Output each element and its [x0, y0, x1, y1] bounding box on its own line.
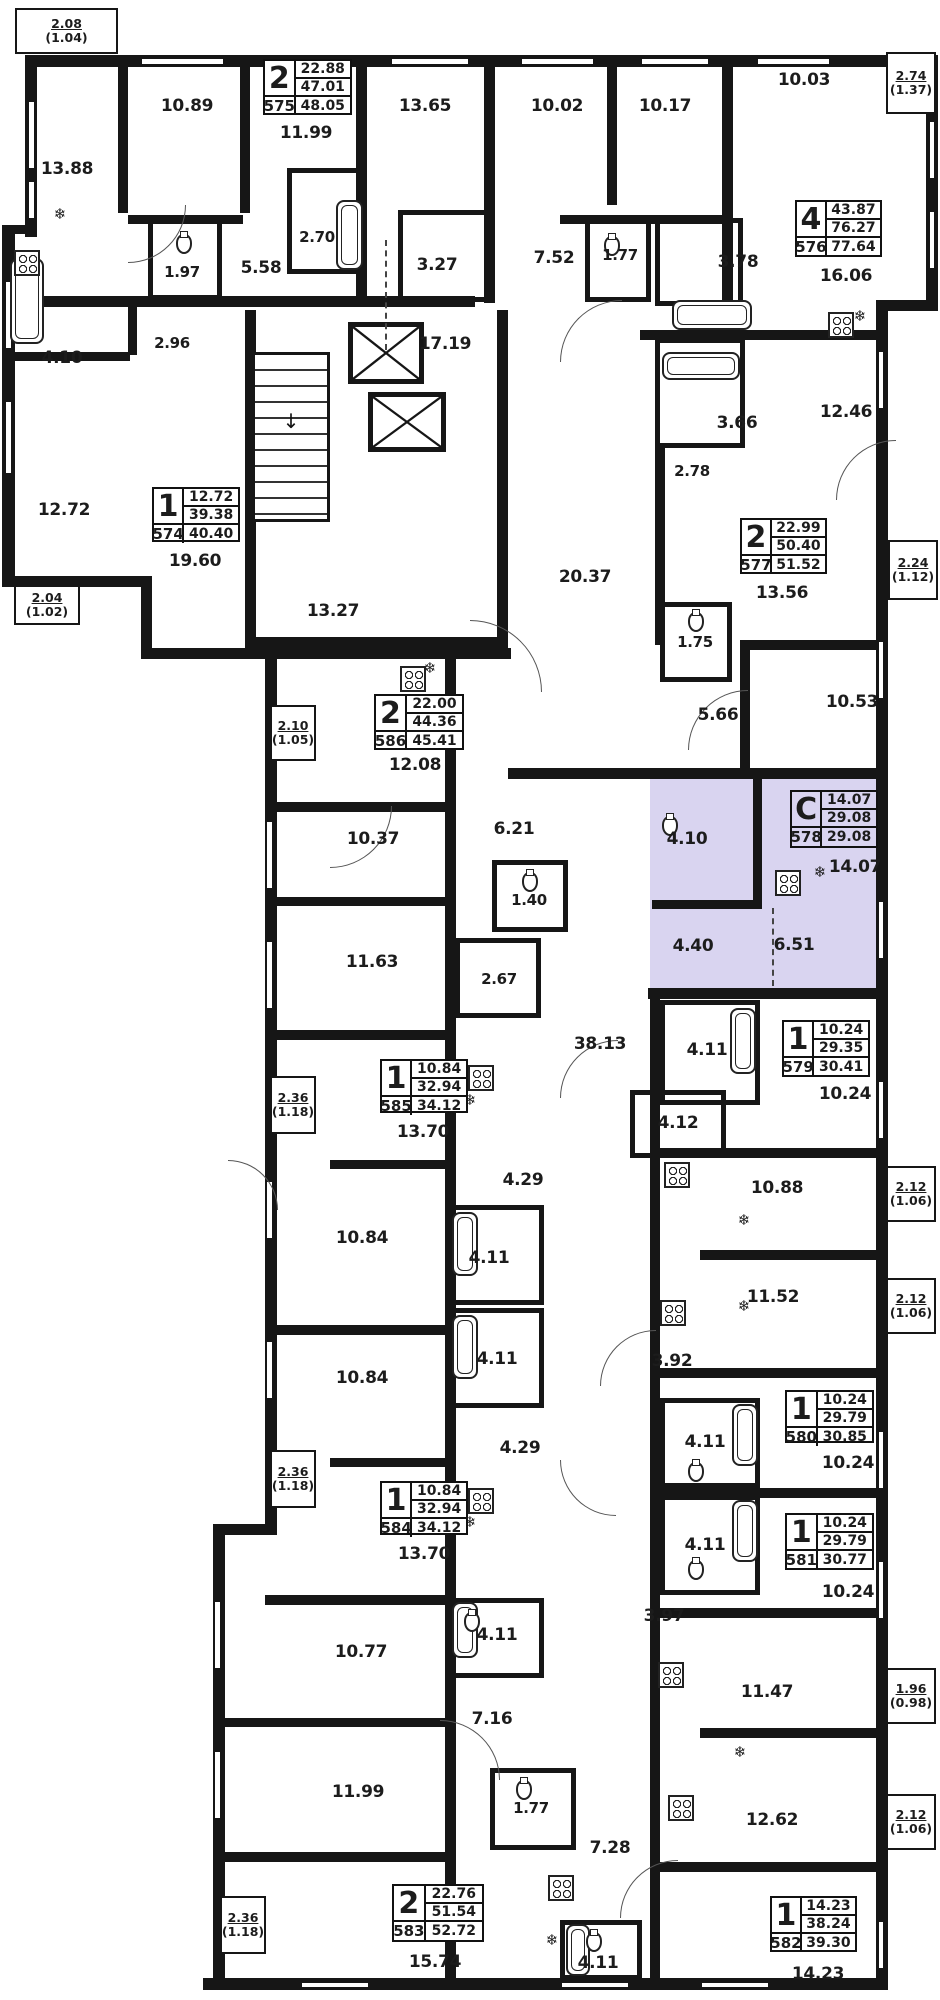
window — [213, 1600, 222, 1670]
apartment-card-580[interactable]: 110.2429.7958030.85 — [785, 1390, 874, 1443]
room-area-label: 1.75 — [677, 633, 713, 651]
dashed-line — [385, 240, 387, 350]
room-area-label: 4.10 — [667, 829, 708, 849]
apartment-area: 29.79 — [818, 1533, 872, 1549]
balcony-area-reduced: (1.04) — [45, 31, 87, 45]
window — [265, 1340, 274, 1400]
room-area-label: 10.02 — [531, 96, 583, 116]
toilet-icon — [586, 1932, 602, 1952]
apartment-card-585[interactable]: 110.8432.9458534.12 — [380, 1059, 468, 1113]
apartment-card-581[interactable]: 110.2429.7958130.77 — [785, 1513, 874, 1570]
apartment-living-area: 43.87 — [827, 202, 880, 220]
balcony-label: 2.36(1.18) — [220, 1896, 266, 1954]
room-area-label: 10.24 — [822, 1453, 874, 1473]
stove-icon — [775, 870, 801, 896]
window — [140, 57, 225, 66]
apartment-area: 50.40 — [772, 538, 825, 554]
room-area-label: 13.70 — [398, 1544, 450, 1564]
apartment-living-area: 22.88 — [296, 61, 350, 79]
balcony-area-reduced: (1.02) — [26, 605, 68, 619]
room-area-label: 14.23 — [792, 1964, 844, 1984]
balcony-area-reduced: (0.98) — [890, 1696, 932, 1710]
wall — [648, 988, 886, 999]
apartment-number: 586 — [376, 730, 407, 750]
wall — [213, 1718, 451, 1727]
room-area-label: 4.11 — [477, 1349, 518, 1369]
room-area-label: 4.11 — [685, 1535, 726, 1555]
apartment-total-area: 30.77 — [818, 1549, 872, 1569]
apartment-room-count: 1 — [787, 1392, 818, 1426]
window — [213, 1750, 222, 1820]
room-area-label: 4.40 — [673, 936, 714, 956]
apartment-number: 577 — [742, 554, 772, 574]
window — [756, 57, 831, 66]
balcony-area-reduced: (1.37) — [890, 83, 932, 97]
apartment-area: 51.54 — [426, 1904, 482, 1920]
window — [700, 1981, 770, 1989]
room-area-label: 2.78 — [674, 462, 710, 480]
wall — [213, 1524, 277, 1535]
balcony-label: 2.36(1.18) — [270, 1450, 316, 1508]
room-area-label: 10.17 — [639, 96, 691, 116]
balcony-label: 2.08(1.04) — [15, 8, 118, 54]
apartment-number: 585 — [382, 1095, 412, 1115]
apartment-total-area: 52.72 — [426, 1920, 482, 1940]
toilet-icon — [688, 1560, 704, 1580]
window — [877, 1560, 885, 1620]
apartment-room-count: 2 — [742, 520, 772, 554]
apartment-card-575[interactable]: 222.8847.0157548.05 — [263, 59, 352, 115]
fridge-icon: ❄ — [814, 863, 827, 881]
room-area-label: 12.62 — [746, 1810, 798, 1830]
apartment-total-area: 45.41 — [407, 730, 462, 750]
wall — [245, 637, 505, 648]
apartment-number: 583 — [394, 1920, 426, 1940]
wall — [265, 1595, 451, 1605]
apartment-living-area: 22.76 — [426, 1886, 482, 1904]
room-area-label: 11.52 — [747, 1287, 799, 1307]
room-area-label: 5.58 — [241, 258, 282, 278]
stove-icon — [660, 1300, 686, 1326]
room-area-label: 4.29 — [500, 1438, 541, 1458]
bathtub-icon — [452, 1315, 478, 1379]
wall — [330, 1160, 452, 1169]
apartment-room-count: 1 — [382, 1483, 412, 1517]
apartment-number: 578 — [792, 826, 822, 846]
window — [390, 57, 470, 66]
room-area-label: 20.37 — [559, 567, 611, 587]
window — [265, 820, 274, 890]
balcony-label: 2.12(1.06) — [886, 1166, 936, 1222]
stove-icon — [14, 250, 40, 276]
balcony-area-reduced: (1.18) — [272, 1105, 314, 1119]
elevator-icon — [368, 392, 446, 452]
apartment-living-area: 10.84 — [412, 1061, 466, 1079]
room-area-label: 10.84 — [336, 1228, 388, 1248]
apartment-card-579[interactable]: 110.2429.3557930.41 — [782, 1020, 870, 1077]
wall — [265, 1325, 451, 1335]
apartment-living-area: 10.84 — [412, 1483, 466, 1501]
balcony-area-reduced: (1.12) — [892, 570, 934, 584]
room-area-label: 38.13 — [574, 1034, 626, 1054]
wall — [753, 773, 762, 909]
apartment-number: 575 — [265, 95, 296, 115]
balcony-area: 2.08 — [51, 17, 82, 31]
room-area-label: 10.24 — [819, 1084, 871, 1104]
bathtub-icon — [672, 300, 752, 330]
apartment-room-count: 2 — [265, 61, 296, 95]
window — [27, 180, 36, 220]
door-arc — [836, 440, 896, 500]
stove-icon — [668, 1795, 694, 1821]
apartment-room-count: 2 — [394, 1886, 426, 1920]
window — [877, 350, 885, 410]
room-area-label: 10.89 — [161, 96, 213, 116]
apartment-living-area: 10.24 — [814, 1022, 868, 1040]
apartment-area: 32.94 — [412, 1501, 466, 1517]
stove-icon — [468, 1065, 494, 1091]
window — [640, 57, 710, 66]
wall — [700, 1728, 886, 1738]
apartment-living-area: 10.24 — [818, 1515, 872, 1533]
window — [4, 400, 13, 475]
apartment-room-count: С — [792, 792, 822, 826]
apartment-number: 581 — [787, 1549, 818, 1569]
room-area-label: 6.21 — [494, 819, 535, 839]
apartment-area: 29.35 — [814, 1040, 868, 1056]
door-arc — [620, 1860, 678, 1918]
balcony-label: 2.24(1.12) — [888, 540, 938, 600]
bathtub-icon — [732, 1404, 758, 1466]
room-area-label: 13.70 — [397, 1122, 449, 1142]
room-area-label: 4.12 — [658, 1113, 699, 1133]
room-area-label: 4.10 — [42, 348, 83, 368]
room-area-label: 4.11 — [685, 1432, 726, 1452]
apartment-number: 579 — [784, 1056, 814, 1076]
balcony-area: 1.96 — [896, 1682, 927, 1696]
fridge-icon: ❄ — [424, 659, 437, 677]
bathtub-icon — [336, 200, 363, 270]
window — [877, 1920, 885, 1970]
room-area-label: 13.56 — [756, 583, 808, 603]
window — [877, 1080, 885, 1140]
room-area-label: 4.11 — [578, 1953, 619, 1973]
wall — [265, 897, 451, 906]
stove-icon — [548, 1875, 574, 1901]
balcony-area: 2.36 — [278, 1091, 309, 1105]
room-area-label: 1.97 — [164, 263, 200, 281]
toilet-icon — [516, 1780, 532, 1800]
apartment-total-area: 48.05 — [296, 95, 350, 115]
room-area-label: 13.65 — [399, 96, 451, 116]
window — [877, 1430, 885, 1490]
apartment-area: 47.01 — [296, 79, 350, 95]
wall — [118, 55, 128, 213]
door-arc — [440, 1720, 500, 1780]
apartment-card-582[interactable]: 114.2338.2458239.30 — [770, 1896, 857, 1952]
balcony-label: 2.04(1.02) — [14, 585, 80, 625]
apartment-total-area: 34.12 — [412, 1095, 466, 1115]
wall — [2, 225, 36, 234]
apartment-area: 39.38 — [184, 507, 238, 523]
fridge-icon: ❄ — [54, 205, 67, 223]
apartment-living-area: 14.07 — [822, 792, 876, 810]
window — [265, 940, 274, 1010]
balcony-area: 2.04 — [32, 591, 63, 605]
room-area-label: 4.11 — [469, 1248, 510, 1268]
apartment-card-577[interactable]: 222.9950.4057751.52 — [740, 518, 827, 574]
apartment-card-574[interactable]: 112.7239.3857440.40 — [152, 487, 240, 542]
door-arc — [560, 300, 622, 362]
door-arc — [470, 620, 542, 692]
apartment-total-area: 77.64 — [827, 236, 880, 256]
toilet-icon — [176, 234, 192, 254]
balcony-area: 2.12 — [896, 1808, 927, 1822]
apartment-card-576[interactable]: 443.8776.2757677.64 — [795, 200, 882, 257]
room-area-label: 12.72 — [38, 500, 90, 520]
balcony-label: 2.12(1.06) — [886, 1794, 936, 1850]
wall — [652, 900, 762, 909]
bathtub-icon — [662, 352, 740, 380]
room-area-label: 1.77 — [602, 246, 638, 264]
room-area-label: 2.96 — [154, 334, 190, 352]
wall — [141, 576, 152, 659]
apartment-room-count: 1 — [787, 1515, 818, 1549]
stairs-icon — [252, 352, 330, 522]
bathtub-icon — [732, 1500, 758, 1562]
apartment-total-area: 29.08 — [822, 826, 876, 846]
toilet-icon — [688, 612, 704, 632]
apartment-room-count: 2 — [376, 696, 407, 730]
balcony-area: 2.74 — [896, 69, 927, 83]
room-area-label: 13.88 — [41, 159, 93, 179]
room-area-label: 6.51 — [774, 935, 815, 955]
room-area-label: 3.92 — [652, 1351, 693, 1371]
room-area-label: 3.27 — [417, 255, 458, 275]
room-area-label: 10.53 — [826, 692, 878, 712]
window — [928, 120, 936, 180]
room-area-label: 16.06 — [820, 266, 872, 286]
room-area-label: 10.24 — [822, 1582, 874, 1602]
apartment-room-count: 1 — [784, 1022, 814, 1056]
wall — [128, 300, 137, 355]
balcony-area: 2.36 — [278, 1465, 309, 1479]
apartment-area: 32.94 — [412, 1079, 466, 1095]
stove-icon — [664, 1162, 690, 1188]
room-area-label: 13.27 — [307, 601, 359, 621]
fridge-icon: ❄ — [546, 1931, 559, 1949]
apartment-area: 29.79 — [818, 1410, 872, 1426]
apartment-living-area: 22.99 — [772, 520, 825, 538]
balcony-area-reduced: (1.18) — [222, 1925, 264, 1939]
balcony-area: 2.12 — [896, 1180, 927, 1194]
room-area-label: 11.63 — [346, 952, 398, 972]
wall — [265, 1030, 451, 1040]
toilet-icon — [522, 872, 538, 892]
room-area-label: 10.88 — [751, 1178, 803, 1198]
apartment-number: 584 — [382, 1517, 412, 1537]
room-area-label: 1.77 — [513, 1799, 549, 1817]
door-arc — [560, 1460, 616, 1516]
balcony-label: 2.10(1.05) — [270, 705, 316, 761]
balcony-area-reduced: (1.05) — [272, 733, 314, 747]
apartment-total-area: 30.41 — [814, 1056, 868, 1076]
stove-icon — [828, 312, 854, 338]
fridge-icon: ❄ — [738, 1211, 751, 1229]
apartment-number: 574 — [154, 523, 184, 543]
apartment-room-count: 1 — [382, 1061, 412, 1095]
apartment-card-583[interactable]: 222.7651.5458352.72 — [392, 1884, 484, 1942]
apartment-living-area: 14.23 — [802, 1898, 855, 1916]
window — [928, 210, 936, 270]
stove-icon — [468, 1488, 494, 1514]
balcony-label: 2.12(1.06) — [886, 1278, 936, 1334]
window — [560, 1981, 630, 1989]
bathtub-icon — [730, 1008, 756, 1074]
wall — [240, 55, 250, 213]
stove-icon — [658, 1662, 684, 1688]
apartment-area: 44.36 — [407, 714, 462, 730]
wall — [650, 1608, 886, 1618]
room-area-label: 11.99 — [280, 123, 332, 143]
room-area-label: 3.66 — [717, 413, 758, 433]
toilet-icon — [688, 1462, 704, 1482]
apartment-living-area: 10.24 — [818, 1392, 872, 1410]
apartment-card-584[interactable]: 110.8432.9458434.12 — [380, 1481, 468, 1535]
balcony-area: 2.12 — [896, 1292, 927, 1306]
room-area-label: 4.11 — [477, 1625, 518, 1645]
stove-icon — [400, 666, 426, 692]
wall — [330, 1458, 452, 1467]
window — [877, 640, 885, 700]
wall — [740, 640, 886, 650]
apartment-total-area: 34.12 — [412, 1517, 466, 1537]
wall — [607, 55, 617, 205]
wall — [700, 1250, 886, 1260]
room-area-label: 1.40 — [511, 891, 547, 909]
apartment-number: 582 — [772, 1932, 802, 1952]
window — [300, 1981, 370, 1989]
apartment-room-count: 4 — [797, 202, 827, 236]
room-area-label: 7.28 — [590, 1838, 631, 1858]
balcony-area: 2.36 — [228, 1911, 259, 1925]
room-area-label: 10.03 — [778, 70, 830, 90]
room-area-label: 3.97 — [644, 1606, 685, 1626]
apartment-total-area: 40.40 — [184, 523, 238, 543]
room-area-label: 14.07 — [829, 857, 881, 877]
apartment-card-578[interactable]: С14.0729.0857829.08 — [790, 790, 878, 848]
balcony-area-reduced: (1.06) — [890, 1194, 932, 1208]
balcony-label: 2.74(1.37) — [886, 52, 936, 114]
balcony-label: 2.36(1.18) — [270, 1076, 316, 1134]
apartment-living-area: 12.72 — [184, 489, 238, 507]
wall — [497, 310, 508, 659]
room-area-label: 4.29 — [503, 1170, 544, 1190]
apartment-card-586[interactable]: 222.0044.3658645.41 — [374, 694, 464, 750]
room-area-label: 2.67 — [481, 970, 517, 988]
window — [27, 100, 36, 170]
fridge-icon: ❄ — [734, 1743, 747, 1761]
room-area-label: 10.77 — [335, 1642, 387, 1662]
balcony-area: 2.10 — [278, 719, 309, 733]
balcony-label: 1.96(0.98) — [886, 1668, 936, 1724]
room-area-label: 11.99 — [332, 1782, 384, 1802]
apartment-total-area: 30.85 — [818, 1426, 872, 1446]
room-area-label: 11.47 — [741, 1682, 793, 1702]
wall — [213, 1852, 453, 1862]
apartment-living-area: 22.00 — [407, 696, 462, 714]
apartment-total-area: 51.52 — [772, 554, 825, 574]
room-area-label: 12.08 — [389, 755, 441, 775]
room-area-label: 15.74 — [409, 1952, 461, 1972]
room-area-label: 10.84 — [336, 1368, 388, 1388]
balcony-area-reduced: (1.06) — [890, 1822, 932, 1836]
apartment-number: 580 — [787, 1426, 818, 1446]
room-area-label: 12.46 — [820, 402, 872, 422]
fridge-icon: ❄ — [854, 307, 867, 325]
room-area-label: 19.60 — [169, 551, 221, 571]
window — [520, 57, 595, 66]
apartment-area: 76.27 — [827, 220, 880, 236]
room-area-label: 10.37 — [347, 829, 399, 849]
room-area-label: 4.11 — [687, 1040, 728, 1060]
apartment-area: 29.08 — [822, 810, 876, 826]
room-area-label: 3.78 — [718, 252, 759, 272]
balcony-area-reduced: (1.18) — [272, 1479, 314, 1493]
apartment-room-count: 1 — [154, 489, 184, 523]
room-area-label: 7.52 — [534, 248, 575, 268]
door-arc — [600, 1330, 656, 1386]
wall — [508, 768, 886, 779]
balcony-area: 2.24 — [898, 556, 929, 570]
apartment-total-area: 39.30 — [802, 1932, 855, 1952]
room-area-label: 5.66 — [698, 705, 739, 725]
wall — [650, 1862, 886, 1872]
apartment-room-count: 1 — [772, 1898, 802, 1932]
window — [877, 900, 885, 960]
apartment-number: 576 — [797, 236, 827, 256]
room-area-label: 2.70 — [299, 228, 335, 246]
balcony-area-reduced: (1.06) — [890, 1306, 932, 1320]
apartment-area: 38.24 — [802, 1916, 855, 1932]
floor-plan: ❄❄❄❄❄❄❄❄❄❄13.8810.8911.9913.6510.0210.17… — [0, 0, 940, 2000]
wall — [141, 648, 511, 659]
room-area-label: 17.19 — [419, 334, 471, 354]
room-area-label: 7.16 — [472, 1709, 513, 1729]
